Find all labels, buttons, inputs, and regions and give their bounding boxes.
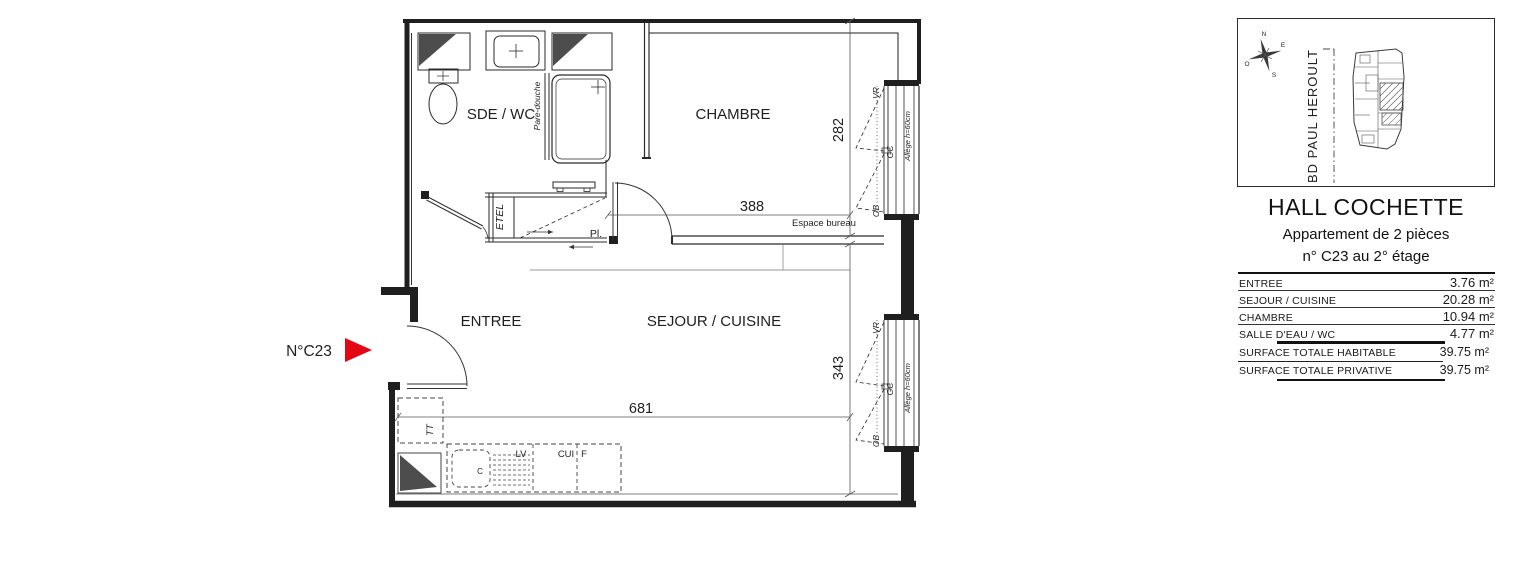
building-outline <box>1353 49 1404 149</box>
kitchen-sink-icon <box>452 450 490 487</box>
total-label: SURFACE TOTALE HABITABLE <box>1238 347 1396 359</box>
label-lv: LV <box>516 449 528 460</box>
area-label: SALLE D'EAU / WC <box>1238 329 1335 341</box>
compass-s: S <box>1272 72 1277 79</box>
label-sink-c: C <box>477 467 483 476</box>
toilet-icon <box>429 69 458 124</box>
label-vr-1: VR <box>871 87 881 99</box>
apartment-highlight <box>1380 83 1403 125</box>
label-gc-2: GC <box>885 382 895 396</box>
entry-door <box>388 326 467 390</box>
location-map: N E O S BD PAUL HEROULT <box>1238 19 1492 184</box>
unit-pointer-label: N°C23 <box>286 343 332 360</box>
duct-shading <box>400 455 437 491</box>
hall-title: HALL COCHETTE <box>1237 194 1495 221</box>
areas-table: ENTREE 3.76 m² SEJOUR / CUISINE 20.28 m²… <box>1238 272 1495 381</box>
dim-282: 282 <box>831 118 847 142</box>
compass-n: N <box>1262 31 1267 38</box>
duct-shading <box>419 34 456 66</box>
table-divider <box>1277 379 1445 382</box>
dim-343: 343 <box>831 356 847 380</box>
area-value: 4.77 m² <box>1450 326 1495 341</box>
duct-shading <box>553 34 588 66</box>
street-name: BD PAUL HEROULT <box>1305 49 1320 183</box>
chambre-door <box>609 182 672 244</box>
label-cui: CUI <box>558 449 574 460</box>
kitchen <box>398 398 621 493</box>
label-pare-douche: Pare-douche <box>532 81 542 130</box>
table-row: SEJOUR / CUISINE 20.28 m² <box>1238 291 1495 308</box>
shower-icon <box>552 75 610 163</box>
bathroom-fixtures <box>418 31 612 163</box>
table-row: SALLE D'EAU / WC 4.77 m² <box>1238 325 1495 341</box>
partitions <box>530 22 884 270</box>
label-ob-1: OB <box>871 205 881 218</box>
label-espace-bureau: Espace bureau <box>792 218 856 229</box>
apartment-number: n° C23 au 2° étage <box>1237 248 1495 265</box>
label-vr-2: VR <box>871 322 881 334</box>
total-value: 39.75 m² <box>1440 345 1495 359</box>
outer-walls <box>381 21 921 504</box>
area-label: CHAMBRE <box>1238 312 1293 324</box>
label-tt: TT <box>425 423 436 436</box>
table-row: CHAMBRE 10.94 m² <box>1238 308 1495 325</box>
boundary-line <box>1323 49 1334 183</box>
compass-o: O <box>1244 61 1249 68</box>
dim-388: 388 <box>740 199 764 215</box>
area-value: 10.94 m² <box>1443 309 1495 324</box>
room-label-sejour: SEJOUR / CUISINE <box>647 313 781 330</box>
table-total-row: SURFACE TOTALE HABITABLE 39.75 m² <box>1238 344 1495 361</box>
sde-door <box>421 191 488 238</box>
label-allege-2: Allège h=60cm <box>903 363 912 414</box>
label-gc-1: GC <box>885 145 895 159</box>
area-value: 3.76 m² <box>1450 275 1495 290</box>
apartment-type: Appartement de 2 pièces <box>1237 226 1495 243</box>
area-label: ENTREE <box>1238 278 1283 290</box>
table-total-row: SURFACE TOTALE PRIVATIVE 39.75 m² <box>1238 362 1495 379</box>
room-label-sde-wc: SDE / WC <box>467 106 536 123</box>
unit-pointer: N°C23 <box>286 338 372 362</box>
dimension-lines <box>395 18 855 497</box>
total-label: SURFACE TOTALE PRIVATIVE <box>1238 365 1392 377</box>
label-allege-1: Allège h=60cm <box>903 111 912 162</box>
location-panel: N E O S BD PAUL HEROULT <box>1237 18 1495 187</box>
room-label-chambre: CHAMBRE <box>695 106 770 123</box>
room-label-entree: ENTREE <box>461 313 522 330</box>
floor-plan-page: SDE / WC CHAMBRE ENTREE SEJOUR / CUISINE… <box>0 0 1527 580</box>
compass-icon: N E O S <box>1244 31 1285 79</box>
dim-681: 681 <box>629 401 653 417</box>
area-value: 20.28 m² <box>1443 292 1495 307</box>
total-value: 39.75 m² <box>1440 363 1495 377</box>
label-ob-2: OB <box>871 435 881 448</box>
label-placard: Pl. <box>590 228 602 240</box>
table-row: ENTREE 3.76 m² <box>1238 274 1495 291</box>
red-arrow-icon <box>345 338 372 362</box>
compass-e: E <box>1281 42 1286 49</box>
area-label: SEJOUR / CUISINE <box>1238 295 1336 307</box>
label-f: F <box>581 449 587 460</box>
label-etel: ETEL <box>494 204 506 230</box>
